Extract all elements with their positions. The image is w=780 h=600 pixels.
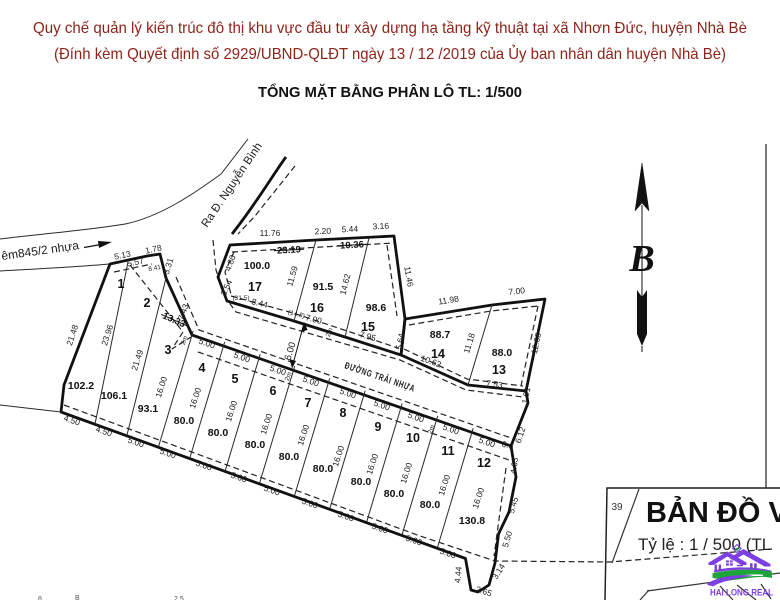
svg-text:4: 4 xyxy=(199,361,206,375)
svg-text:16: 16 xyxy=(310,301,324,315)
svg-text:4.44: 4.44 xyxy=(452,566,463,584)
svg-text:Quy chế quản lý kiến trúc đô t: Quy chế quản lý kiến trúc đô thị khu vực… xyxy=(33,20,747,37)
svg-text:8: 8 xyxy=(340,406,347,420)
svg-text:7: 7 xyxy=(305,396,312,410)
svg-text:B: B xyxy=(75,595,80,600)
svg-text:(31.5): (31.5) xyxy=(233,295,250,302)
svg-text:106.1: 106.1 xyxy=(101,390,127,402)
svg-text:8: 8 xyxy=(38,596,42,600)
svg-text:2.20: 2.20 xyxy=(314,226,331,237)
svg-text:88.7: 88.7 xyxy=(430,329,451,341)
svg-text:11.76: 11.76 xyxy=(260,228,281,238)
svg-text:13: 13 xyxy=(492,363,506,377)
svg-text:3: 3 xyxy=(165,343,172,357)
svg-text:15: 15 xyxy=(361,320,375,334)
svg-text:7.00: 7.00 xyxy=(508,285,526,297)
svg-text:80.0: 80.0 xyxy=(351,476,372,488)
svg-text:100.0: 100.0 xyxy=(244,260,270,272)
svg-text:4.63: 4.63 xyxy=(508,457,520,475)
svg-text:91.5: 91.5 xyxy=(313,281,334,293)
svg-text:12: 12 xyxy=(477,456,491,470)
svg-text:80.0: 80.0 xyxy=(279,451,300,463)
svg-text:(Đính kèm Quyết định số 2929/U: (Đính kèm Quyết định số 2929/UBND-QLĐT n… xyxy=(54,44,726,63)
svg-text:6: 6 xyxy=(270,384,277,398)
svg-text:BẢN ĐỒ VỊ T: BẢN ĐỒ VỊ T xyxy=(646,495,780,529)
svg-text:1: 1 xyxy=(118,277,125,291)
svg-text:80.0: 80.0 xyxy=(245,439,266,451)
svg-text:5.44: 5.44 xyxy=(341,224,358,235)
svg-text:Tỷ lệ : 1 / 500 (TL: Tỷ lệ : 1 / 500 (TL xyxy=(638,535,771,554)
svg-text:98.6: 98.6 xyxy=(366,302,387,314)
svg-text:B: B xyxy=(628,238,654,280)
svg-text:2.5: 2.5 xyxy=(174,596,184,600)
svg-text:2: 2 xyxy=(144,296,151,310)
svg-text:TỔNG MẶT BẰNG PHÂN LÔ TL: 1/50: TỔNG MẶT BẰNG PHÂN LÔ TL: 1/500 xyxy=(258,83,522,101)
svg-text:130.8: 130.8 xyxy=(459,515,485,527)
svg-text:102.2: 102.2 xyxy=(68,380,94,392)
svg-text:80.0: 80.0 xyxy=(420,499,441,511)
svg-text:5: 5 xyxy=(232,372,239,386)
svg-text:3.16: 3.16 xyxy=(372,221,389,232)
svg-text:14: 14 xyxy=(431,347,445,361)
svg-text:80.0: 80.0 xyxy=(384,488,405,500)
svg-text:80.0: 80.0 xyxy=(174,415,195,427)
svg-text:88.0: 88.0 xyxy=(492,347,513,359)
svg-text:17: 17 xyxy=(248,280,262,294)
svg-text:HAI LONG REAL: HAI LONG REAL xyxy=(710,588,773,599)
svg-text:11: 11 xyxy=(441,444,454,458)
svg-text:9: 9 xyxy=(375,420,382,434)
svg-text:93.1: 93.1 xyxy=(138,403,159,415)
svg-text:80.0: 80.0 xyxy=(313,463,334,475)
svg-text:39: 39 xyxy=(611,502,623,513)
svg-text:10: 10 xyxy=(406,431,420,445)
svg-text:80.0: 80.0 xyxy=(208,427,229,439)
